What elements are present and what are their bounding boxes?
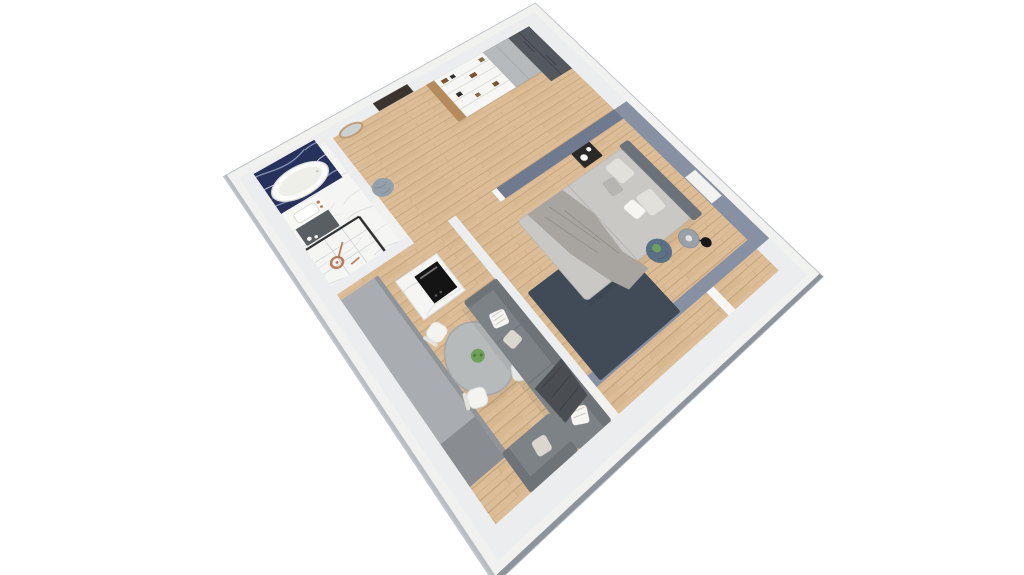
plan-3d-container [239, 12, 807, 560]
floorplan-canvas [210, 0, 836, 575]
floorplan-render [0, 0, 1024, 575]
